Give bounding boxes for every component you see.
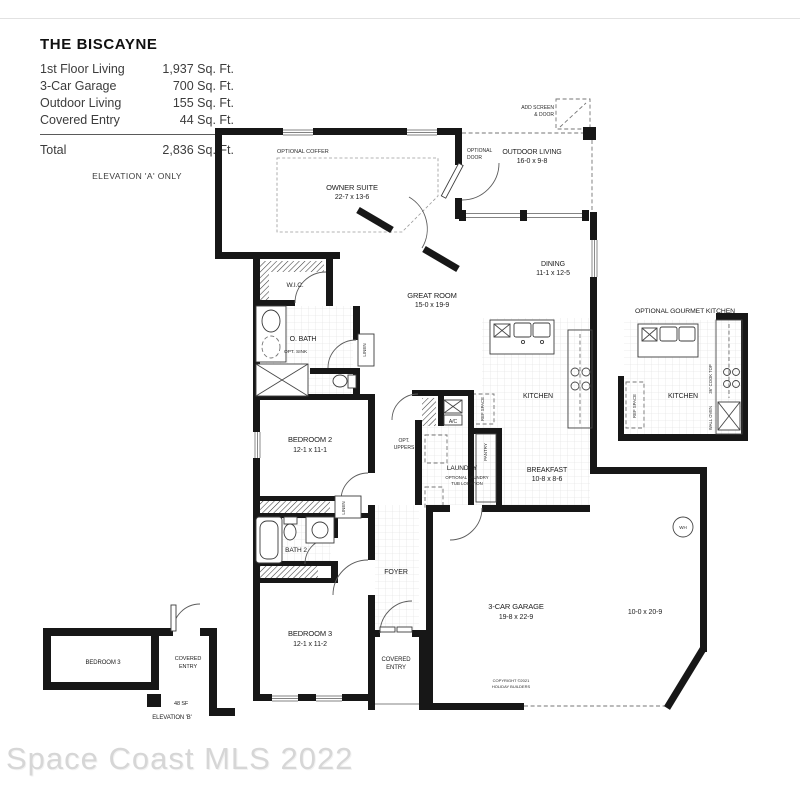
sink: [312, 522, 328, 538]
slider-door: [459, 210, 589, 221]
gourmet-title: OPTIONAL GOURMET KITCHEN: [635, 308, 735, 315]
bath2-label: BATH 2: [285, 547, 307, 554]
covered-entry-label-2: ENTRY: [386, 665, 406, 671]
linen-closet: [335, 496, 361, 518]
floor-plan-drawing: OWNER SUITE 22-7 x 13-6 OPTIONAL COFFER …: [0, 0, 800, 800]
linen-label: LINEN: [341, 501, 346, 514]
window: [407, 130, 437, 135]
garage-dims: 19-8 x 22-9: [499, 614, 534, 621]
window: [316, 696, 342, 701]
optional-coffer-label: OPTIONAL COFFER: [277, 149, 329, 155]
opt-sink-label: OPT. SINK: [284, 349, 308, 355]
inset-entry-door-leaf: [171, 605, 176, 631]
inset-entry-door-arc: [173, 604, 200, 631]
toilet: [333, 375, 347, 387]
front-door-leaf: [380, 627, 395, 632]
sink-basin: [679, 327, 695, 341]
wall-oven-label: WALL OVEN: [708, 406, 713, 430]
pantry-label: PANTRY: [483, 443, 488, 461]
outdoor-living-label: OUTDOOR LIVING: [502, 149, 561, 156]
foyer-label: FOYER: [384, 569, 408, 576]
garage-entry-door-arc: [450, 508, 482, 540]
linen-label: LINEN: [362, 343, 367, 356]
breakfast-dims: 10-8 x 8-6: [532, 476, 563, 483]
water-heater-label: WH: [679, 525, 687, 530]
tub-basin: [260, 521, 278, 559]
copyright-line-2: HOLIDAY BUILDERS: [492, 684, 531, 689]
toilet-tank: [348, 375, 356, 388]
laundry-label: LAUNDRY: [447, 465, 478, 472]
sink: [262, 310, 280, 332]
inset-bedroom3-label: BEDROOM 3: [85, 660, 121, 666]
garage-label: 3-CAR GARAGE: [488, 602, 544, 611]
bedroom2-label: BEDROOM 2: [288, 435, 332, 444]
dining-dims: 11-1 x 12-5: [536, 270, 570, 277]
window: [272, 696, 298, 701]
floor-plan-sheet: THE BISCAYNE 1st Floor Living 1,937 Sq. …: [0, 0, 800, 800]
inset-covered-label-2: ENTRY: [179, 664, 197, 670]
optional-door-label-2: DOOR: [467, 155, 482, 161]
opt-uppers-label-2: UPPERS: [394, 445, 415, 451]
owner-suite-label: OWNER SUITE: [326, 183, 378, 192]
toilet: [284, 524, 296, 540]
hall-closet-door-arc: [392, 394, 418, 420]
window: [592, 240, 597, 277]
optional-door-leaf: [441, 163, 463, 198]
sink-basin: [533, 323, 550, 337]
mls-watermark: Space Coast MLS 2022: [6, 741, 353, 777]
great-room-dims: 15-0 x 19-9: [415, 302, 450, 309]
owner-suite-dims: 22-7 x 13-6: [335, 194, 370, 201]
breakfast-label: BREAKFAST: [527, 467, 568, 474]
sink-basin: [660, 327, 677, 341]
window: [255, 432, 260, 458]
bedroom3-label: BEDROOM 3: [288, 629, 332, 638]
bedroom3-dims: 12-1 x 11-2: [293, 641, 327, 648]
opt-uppers-label-1: OPT.: [398, 438, 409, 444]
optional-laundry-label-2: TUB LOCATION: [451, 481, 482, 486]
gourmet-kitchen-label: KITCHEN: [668, 393, 698, 400]
optional-door-arc: [462, 163, 499, 200]
optional-door-label-1: OPTIONAL: [467, 148, 493, 154]
bedroom3-door-arc: [333, 560, 368, 595]
window: [283, 130, 313, 135]
great-room-label: GREAT ROOM: [407, 291, 457, 300]
optional-laundry-label-1: OPTIONAL LAUNDRY: [445, 475, 488, 480]
copyright-line-1: COPYRIGHT ©2021: [493, 678, 530, 683]
outdoor-living-dims: 16-0 x 9-8: [517, 158, 548, 165]
garage-bay-dims: 10-0 x 20-9: [628, 609, 663, 616]
wic-label: W.I.C.: [286, 282, 303, 289]
ac-label: A/C: [449, 419, 458, 425]
add-screen-label-1: ADD SCREEN: [521, 105, 554, 111]
owner-bath-label: O. BATH: [290, 336, 317, 343]
ref-space-label: REF SPACE: [480, 397, 485, 421]
screen-door-swing: [560, 103, 586, 127]
inset-covered-label-1: COVERED: [175, 656, 202, 662]
gourmet-ref-space-label: REF SPACE: [632, 394, 637, 418]
cook-top-label: 36" COOK TOP: [708, 364, 713, 393]
bedroom2-dims: 12-1 x 11-1: [293, 447, 327, 454]
toilet-tank: [284, 517, 297, 524]
dining-label: DINING: [541, 261, 565, 268]
add-screen-label-2: & DOOR: [534, 112, 554, 118]
covered-entry-label-1: COVERED: [382, 657, 412, 663]
inset-sf-label: 48 SF: [174, 701, 189, 707]
kitchen-label: KITCHEN: [523, 393, 553, 400]
sink-basin: [514, 323, 531, 337]
front-door-leaf: [397, 627, 412, 632]
inset-elevation-label: ELEVATION 'B': [152, 715, 191, 721]
